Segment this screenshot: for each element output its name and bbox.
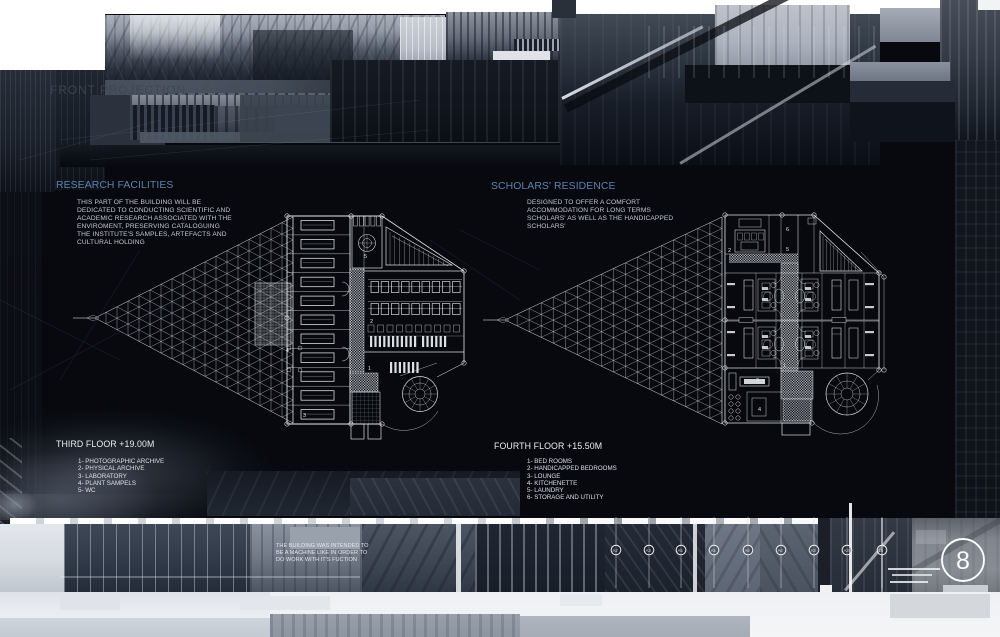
- svg-text:1: 1: [368, 366, 371, 372]
- svg-text:8: 8: [956, 547, 970, 575]
- svg-text:6: 6: [786, 227, 789, 233]
- svg-text:A2: A2: [613, 548, 619, 553]
- svg-text:5: 5: [364, 254, 367, 260]
- svg-text:2: 2: [370, 319, 373, 325]
- svg-text:3: 3: [303, 413, 306, 419]
- svg-text:4: 4: [286, 348, 289, 354]
- svg-text:1: 1: [783, 363, 786, 369]
- svg-text:A3: A3: [646, 548, 652, 553]
- svg-text:10: 10: [879, 548, 884, 553]
- svg-text:A6: A6: [678, 548, 684, 553]
- svg-text:A5: A5: [711, 548, 717, 553]
- svg-text:4: 4: [758, 407, 761, 413]
- svg-text:A6: A6: [745, 548, 751, 553]
- svg-text:A3: A3: [844, 548, 850, 553]
- svg-text:3: 3: [756, 378, 759, 384]
- svg-text:A6: A6: [778, 548, 784, 553]
- svg-text:2: 2: [728, 248, 731, 254]
- svg-text:A3: A3: [811, 548, 817, 553]
- svg-text:5: 5: [786, 247, 789, 253]
